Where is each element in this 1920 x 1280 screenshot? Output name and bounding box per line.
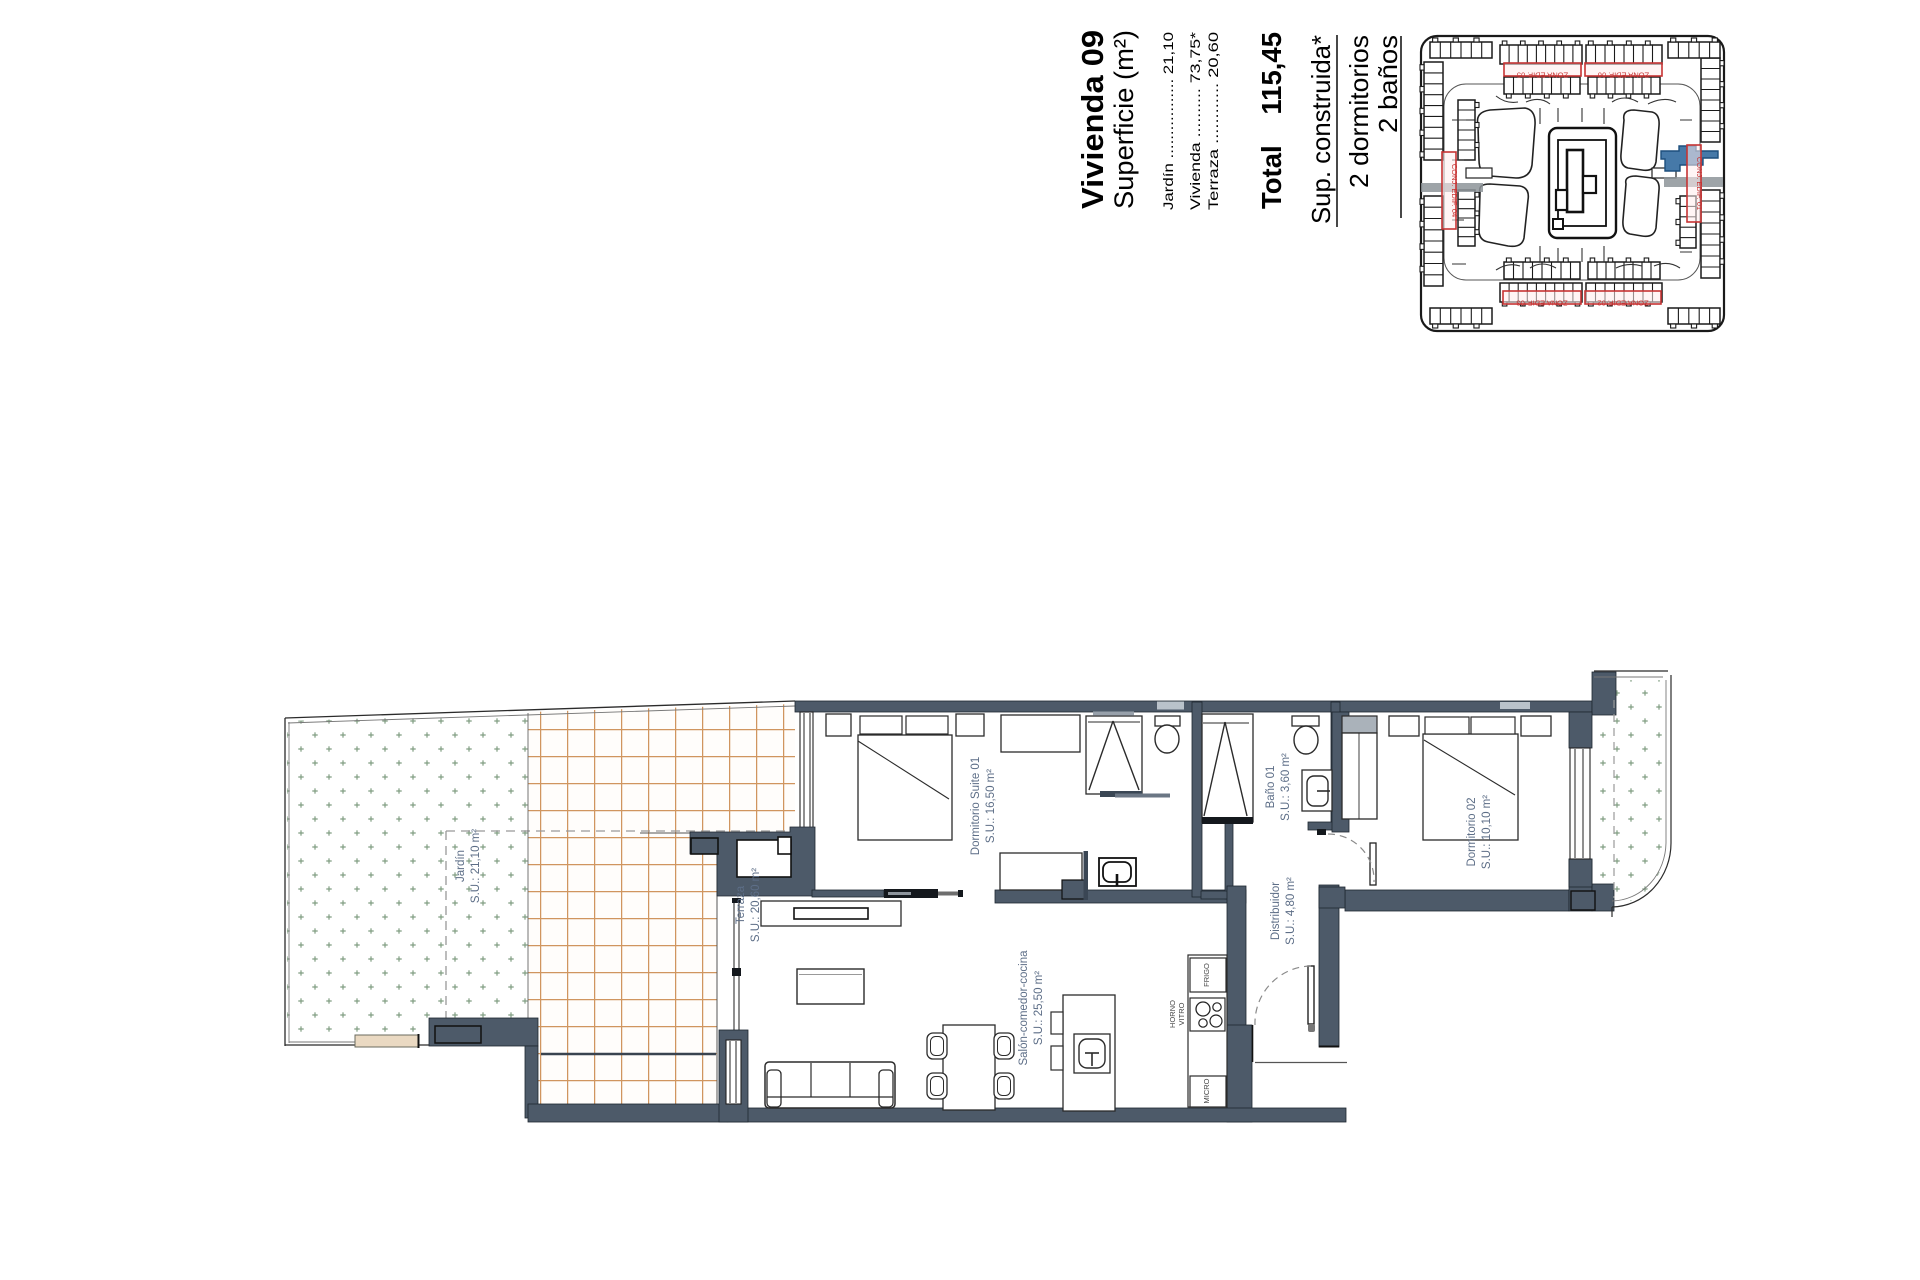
svg-text:Jardín: Jardín	[455, 850, 467, 882]
svg-text:Terraza: Terraza	[735, 885, 747, 924]
svg-text:2 baños: 2 baños	[1373, 35, 1403, 133]
svg-text:ZONA EDIF. 05: ZONA EDIF. 05	[1517, 71, 1568, 80]
svg-text:S.U.: 21,10 m²: S.U.: 21,10 m²	[470, 829, 482, 903]
svg-text:Superficie (m²): Superficie (m²)	[1109, 30, 1139, 209]
svg-text:Vivienda 09: Vivienda 09	[1075, 30, 1110, 209]
svg-text:Baño 01: Baño 01	[1265, 766, 1277, 809]
svg-text:HORNO: HORNO	[1168, 1000, 1177, 1028]
svg-text:Jardín ................. 21,10: Jardín ................. 21,10	[1160, 32, 1176, 210]
svg-text:ZONA EDIF. 02: ZONA EDIF. 02	[1597, 299, 1648, 308]
svg-text:S.U.: 3,60 m²: S.U.: 3,60 m²	[1280, 753, 1292, 821]
svg-text:Terraza ............ 20,60: Terraza ............ 20,60	[1205, 32, 1221, 210]
svg-text:Total: Total	[1256, 145, 1287, 209]
svg-text:ZONA EDIF. 06: ZONA EDIF. 06	[1598, 71, 1649, 80]
svg-text:ZONA EDIF. 03: ZONA EDIF. 03	[1516, 299, 1567, 308]
svg-text:Dormitorio Suite 01: Dormitorio Suite 01	[970, 757, 982, 855]
svg-text:VITRO: VITRO	[1177, 1002, 1186, 1025]
svg-text:S.U.: 10,10 m²: S.U.: 10,10 m²	[1481, 795, 1493, 869]
svg-text:S.U.: 20,60 m²: S.U.: 20,60 m²	[750, 868, 762, 942]
svg-text:Dormitorio 02: Dormitorio 02	[1466, 797, 1478, 866]
svg-text:FRIGO: FRIGO	[1202, 963, 1211, 987]
svg-text:S.U.: 25,50 m²: S.U.: 25,50 m²	[1033, 971, 1045, 1045]
svg-text:Salón-comedor-cocina: Salón-comedor-cocina	[1018, 950, 1030, 1066]
svg-text:115,45: 115,45	[1256, 32, 1287, 115]
svg-text:Vivienda .......... 73,75*: Vivienda .......... 73,75*	[1187, 31, 1203, 210]
svg-text:Distribuidor: Distribuidor	[1270, 882, 1282, 940]
svg-text:2 dormitorios: 2 dormitorios	[1344, 35, 1374, 188]
svg-text:S.U.: 4,80 m²: S.U.: 4,80 m²	[1285, 877, 1297, 945]
svg-text:CONJ. EDIF. 04: CONJ. EDIF. 04	[1450, 164, 1459, 217]
svg-text:CONJ. EDIF. 01: CONJ. EDIF. 01	[1695, 157, 1704, 210]
svg-text:Sup. construida*: Sup. construida*	[1306, 35, 1336, 224]
svg-text:MICRO: MICRO	[1202, 1078, 1211, 1103]
svg-text:S.U.: 16,50 m²: S.U.: 16,50 m²	[985, 769, 997, 843]
